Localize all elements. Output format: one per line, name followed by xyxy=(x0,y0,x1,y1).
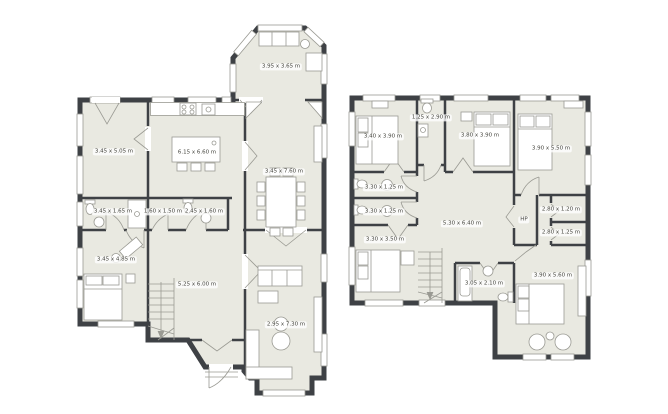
room-label-bathroom-2: 3.30 x 1.25 m xyxy=(363,184,405,191)
room-label-bedroom-5: 3.90 x 5.60 m xyxy=(532,272,574,279)
room-label-hp-closet: HP xyxy=(518,216,529,223)
room-label-hall: 5.25 x 6.00 m xyxy=(176,281,218,288)
room-label-bathroom-3: 3.30 x 1.25 m xyxy=(363,208,405,215)
room-label-bedroom-1: 3.40 x 3.90 m xyxy=(362,133,404,140)
porch-steps xyxy=(205,372,238,377)
front-door xyxy=(209,367,231,388)
room-label-bedroom-3: 3.90 x 5.50 m xyxy=(530,145,572,152)
room-label-bedroom-4: 3.30 x 3.50 m xyxy=(364,236,406,243)
room-label-bathroom-1: 1.25 x 2.90 m xyxy=(410,114,452,121)
room-label-bedroom: 3.45 x 4.85 m xyxy=(95,256,137,263)
room-label-closet: 1.60 x 1.50 m xyxy=(142,208,184,215)
room-label-sitting-room: 3.45 x 5.05 m xyxy=(93,148,135,155)
room-label-dining-room: 3.45 x 7.60 m xyxy=(263,168,305,175)
room-label-living-room: 2.95 x 7.30 m xyxy=(265,321,307,328)
kitchen-counter xyxy=(151,103,245,116)
floor-plan-canvas: 3.95 x 3.65 m 3.45 x 5.05 m 6.15 x 6.60 … xyxy=(0,0,668,414)
room-label-landing: 5.30 x 6.40 m xyxy=(441,220,483,227)
room-label-conservatory: 3.95 x 3.65 m xyxy=(260,63,302,70)
room-label-bedroom-2: 3.80 x 3.90 m xyxy=(459,132,501,139)
room-label-wc: 2.45 x 1.60 m xyxy=(183,208,225,215)
room-label-bathroom-5: 2.80 x 1.25 m xyxy=(540,229,582,236)
room-label-bathroom-6: 3.05 x 2.10 m xyxy=(463,280,505,287)
room-label-bathroom: 3.45 x 1.65 m xyxy=(92,208,134,215)
room-label-kitchen: 6.15 x 6.60 m xyxy=(176,149,218,156)
room-label-bathroom-4: 2.80 x 1.20 m xyxy=(540,206,582,213)
